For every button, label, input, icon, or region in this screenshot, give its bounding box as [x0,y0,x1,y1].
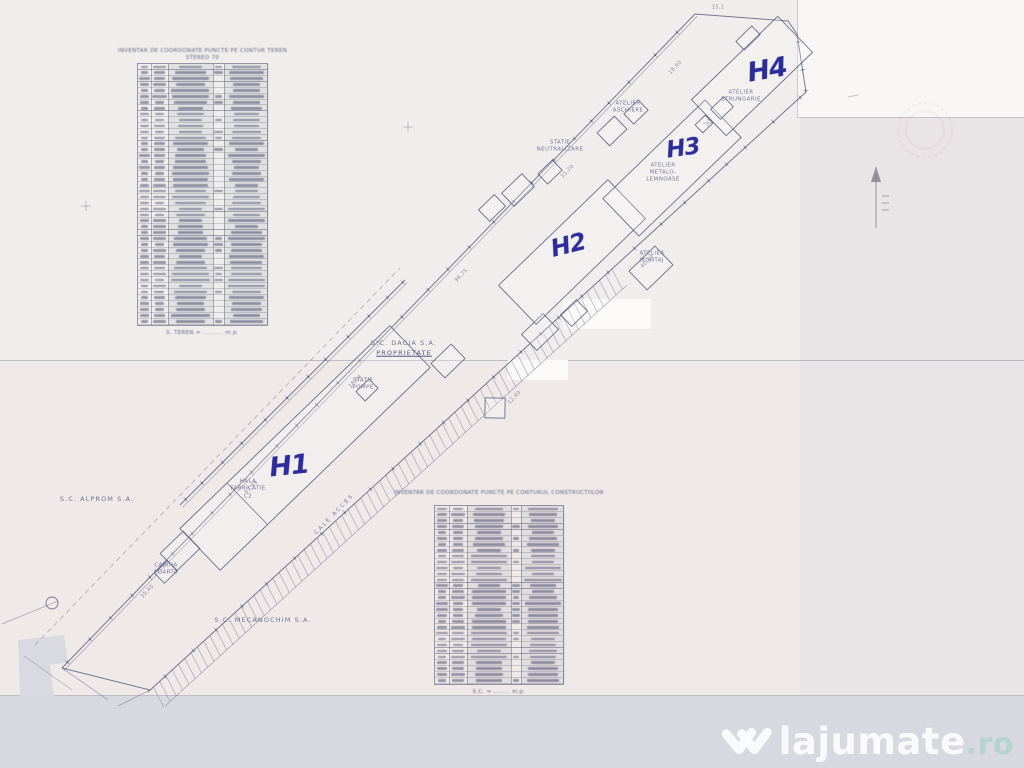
company-label: S.C. DACIA S.A. [371,340,437,347]
access-road-hatch [323,532,333,552]
access-road-hatch [254,595,264,615]
building-outbuilding [485,398,505,418]
access-road-hatch [210,635,220,655]
boundary-stray [62,668,108,700]
access-road-hatch [367,492,377,512]
building-neutralization [502,174,535,206]
building-outbuilding [597,116,627,146]
access-road-hatch [612,269,622,289]
access-road-hatch [153,687,163,707]
survey-point [744,146,746,148]
building-outbuilding [431,344,465,378]
access-road-hatch [474,395,484,415]
survey-point [427,289,429,291]
handwritten-label-h4: H4 [745,53,788,86]
access-road-hatch [191,653,201,673]
survey-point [581,295,583,297]
feature-label: ASCHIERE [613,108,644,114]
feature-label: ATELIER [729,90,754,96]
survey-point [467,399,469,401]
access-road-hatch [266,584,276,604]
access-road-hatch [430,435,440,455]
feature-label: ATELIER [651,163,676,169]
survey-point [802,69,804,71]
feature-label: CABINA [154,563,177,569]
feature-label: LEMNOASE [646,177,680,183]
company-label: S.C. ALPROM S.A. [60,496,134,503]
access-road-hatch [449,418,459,438]
access-road-hatch [178,664,188,684]
survey-point [799,96,801,98]
w-chevrons-icon [720,720,772,762]
access-road-hatch [166,675,176,695]
access-road-hatch [354,504,364,524]
survey-point [676,31,678,33]
feature-label: NEUTRALIZARE [537,147,584,153]
access-road-hatch [172,670,182,690]
feature-label: STRUNGARIE [721,97,761,103]
survey-point [447,268,449,270]
survey-point [628,81,630,83]
parcel-boundary-bottom [62,668,150,690]
access-road-hatch [304,550,314,570]
dimension-label: 15,1 [712,6,725,11]
survey-point [607,271,609,273]
feature-label: POARTA [154,570,178,576]
handwritten-label-h1: H1 [268,451,310,482]
survey-point [149,576,151,578]
access-road-hatch [411,452,421,472]
boundary-stray [2,601,58,624]
access-road-hatch [298,555,308,575]
access-road-hatch [424,441,434,461]
survey-point [67,661,69,663]
watermark-brand: lajumate [779,720,966,763]
survey-point [493,376,495,378]
survey-point [241,442,243,444]
survey-point [392,468,394,470]
access-road-hatch [493,378,503,398]
survey-point [654,54,656,56]
watermark-text: lajumate.ro [779,723,1014,760]
access-road-hatch [348,509,358,529]
feature-label: STATIE [550,140,571,146]
survey-point [264,419,266,421]
building-outbuilding [538,160,562,184]
survey-point [468,246,470,248]
company-label: S.C. MECANOCHIM S.A. [214,617,311,624]
table-title: INVENTAR DE COORDONATE PUNCTE PE CONTURU… [394,490,604,497]
survey-point [344,512,346,514]
access-road-hatch [455,412,465,432]
table-title: INVENTAR DE COORDONATE PUNCTE PE CONTUR … [118,48,287,55]
survey-point [634,247,636,249]
table-caption: S.C. = ........ m.p. [472,689,525,696]
access-road-hatch [197,647,207,667]
survey-point [185,498,187,500]
access-road-hatch [436,429,446,449]
access-road-hatch [204,641,214,661]
survey-point [215,629,217,631]
survey-point [131,595,133,597]
survey-point [307,376,309,378]
access-road-hatch [273,578,283,598]
survey-point [241,605,243,607]
access-road-hatch [467,401,477,421]
access-road-hatch [380,481,390,501]
access-road-hatch [398,464,408,484]
feature-label: METALO- [649,170,676,176]
watermark: lajumate.ro [720,720,1014,762]
survey-point [294,557,296,559]
access-road-hatch [285,567,295,587]
access-road-hatch [461,406,471,426]
access-road-hatch [342,515,352,535]
survey-point [110,617,112,619]
access-road-hatch [606,275,616,295]
access-road-hatch [310,544,320,564]
access-road-hatch [442,424,452,444]
survey-point [164,676,166,678]
surveyed-point-circle [46,597,58,609]
correction-blob [18,635,68,700]
survey-point [708,180,710,182]
watermark-tld: .ro [966,727,1014,762]
survey-point [443,421,445,423]
survey-point [192,650,194,652]
access-road-hatch [279,572,289,592]
survey-point [201,482,203,484]
access-road-hatch [417,446,427,466]
survey-point [660,223,662,225]
access-road-hatch [185,658,195,678]
stamp [898,103,952,157]
survey-point [493,221,495,223]
survey-point [402,281,404,283]
stamp-ring [906,111,944,149]
stray-mark [848,95,858,97]
access-road-hatch [216,630,226,650]
access-road-hatch [260,590,270,610]
survey-point [89,638,91,640]
table-caption: S. TEREN = .......... m.p. [166,330,239,337]
access-road-hatch [336,521,346,541]
building-outbuilding [479,195,506,222]
access-road-hatch [599,280,609,300]
access-road-hatch [405,458,415,478]
survey-point [558,317,560,319]
survey-point [772,121,774,123]
north-arrow-head [871,166,881,182]
access-road-hatch [222,624,232,644]
survey-point [387,296,389,298]
survey-point [608,102,610,104]
access-road-hatch [317,538,327,558]
survey-point [222,461,224,463]
company-label: PROPRIETATE [376,350,432,357]
survey-point [726,163,728,165]
survey-point [684,202,686,204]
survey-point [369,488,371,490]
table-grid [434,505,564,685]
survey-point [573,138,575,140]
survey-point [368,315,370,317]
access-road-hatch [361,498,371,518]
survey-point [325,358,327,360]
survey-point [590,120,592,122]
survey-point [401,316,403,318]
boundary-stray [118,690,150,706]
feature-label: ATELIER [616,101,641,107]
access-road-hatch [292,561,302,581]
access-road-hatch [329,527,339,547]
handwritten-label-h3: H3 [665,135,701,162]
whiteout-patch [508,360,568,380]
survey-point [347,336,349,338]
access-road-hatch [373,487,383,507]
access-road-hatch [392,469,402,489]
feature-label: POMPE [352,385,373,391]
survey-point [266,583,268,585]
table-grid [137,63,268,326]
access-road-hatch [160,681,170,701]
survey-point [419,443,421,445]
table-title: STEREO 70 [186,55,219,62]
access-road-hatch [499,372,509,392]
survey-point [286,397,288,399]
survey-point [520,351,522,353]
survey-point [805,90,807,92]
